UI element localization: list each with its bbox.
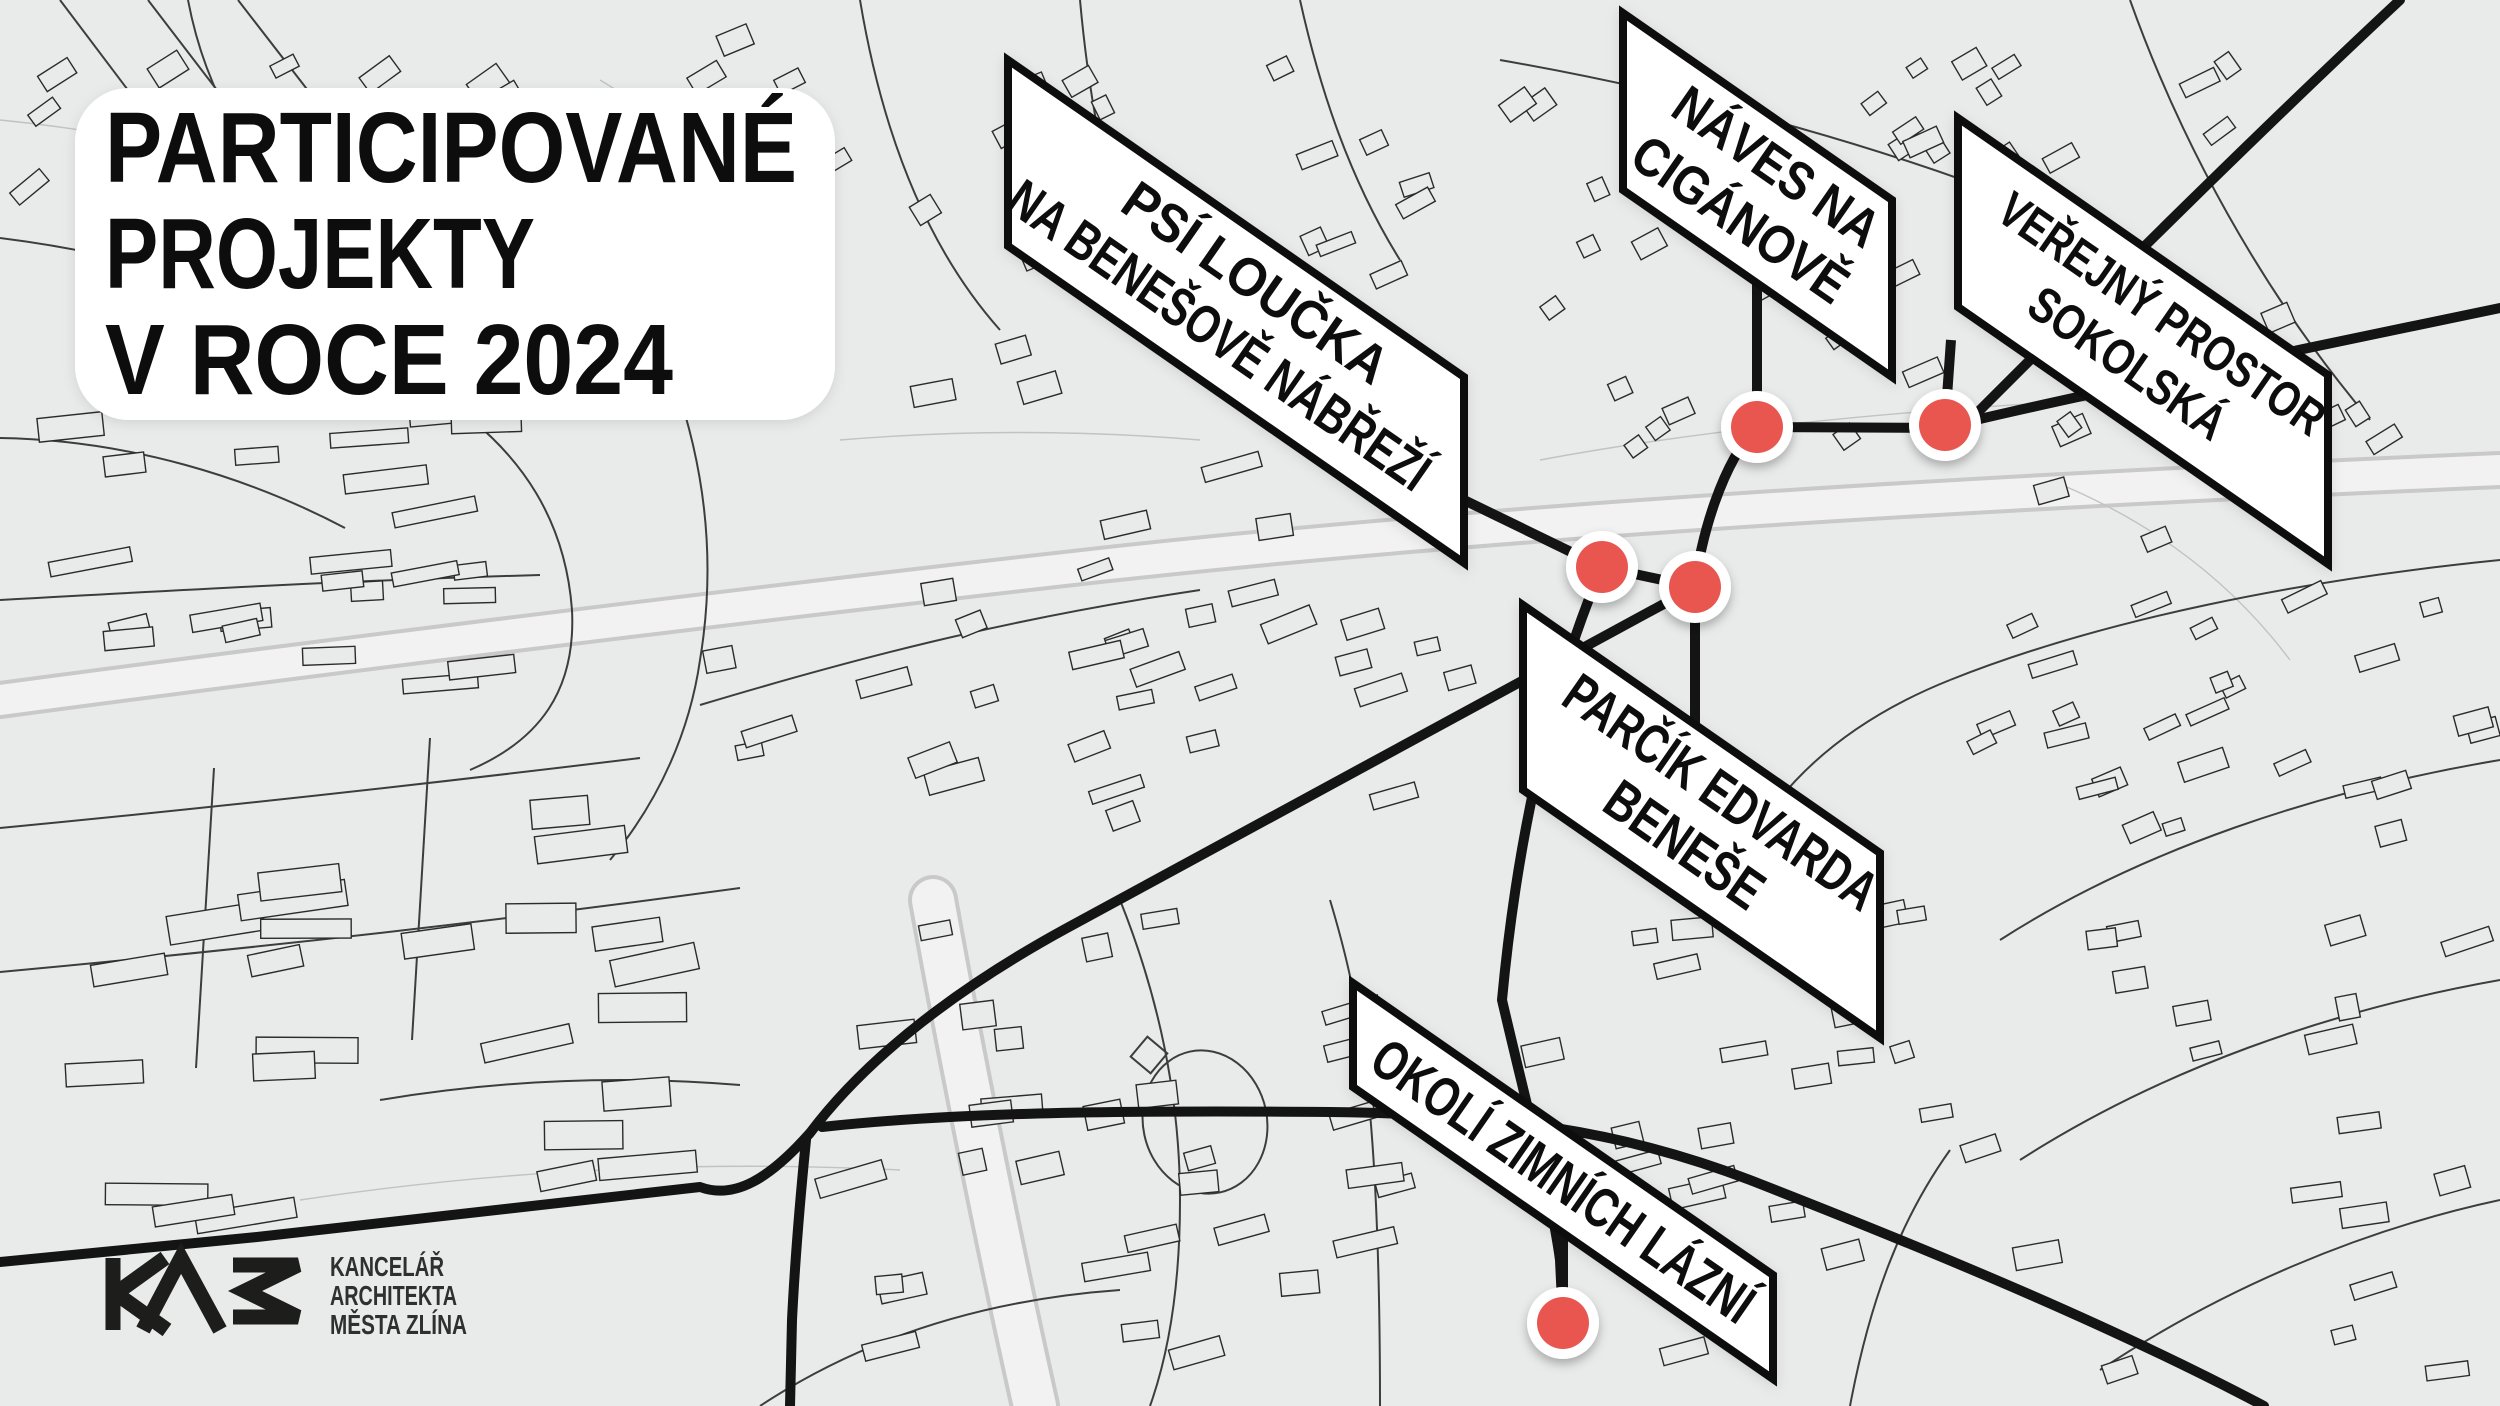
- page-title-line2: PROJEKTY: [105, 198, 535, 310]
- marker-parcik: [1659, 551, 1731, 623]
- marker-sokolska: [1909, 389, 1981, 461]
- logo-text-line1: KANCELÁŘ: [330, 1251, 444, 1282]
- logo-text-line2: ARCHITEKTA: [330, 1280, 457, 1311]
- participation-map-poster: PSÍ LOUČKA NA BENEŠOVĚ NÁBŘEŽÍ NÁVES NA …: [0, 0, 2500, 1406]
- page-title-line3: V ROCE 2024: [105, 304, 673, 416]
- page-title-line1: PARTICIPOVANÉ: [105, 92, 797, 204]
- marker-psi-loucka: [1566, 531, 1638, 603]
- title-card: PARTICIPOVANÉ PROJEKTY V ROCE 2024: [75, 88, 835, 420]
- marker-naves: [1721, 391, 1793, 463]
- logo-text-line3: MĚSTA ZLÍNA: [330, 1309, 467, 1340]
- marker-okoli: [1527, 1287, 1599, 1359]
